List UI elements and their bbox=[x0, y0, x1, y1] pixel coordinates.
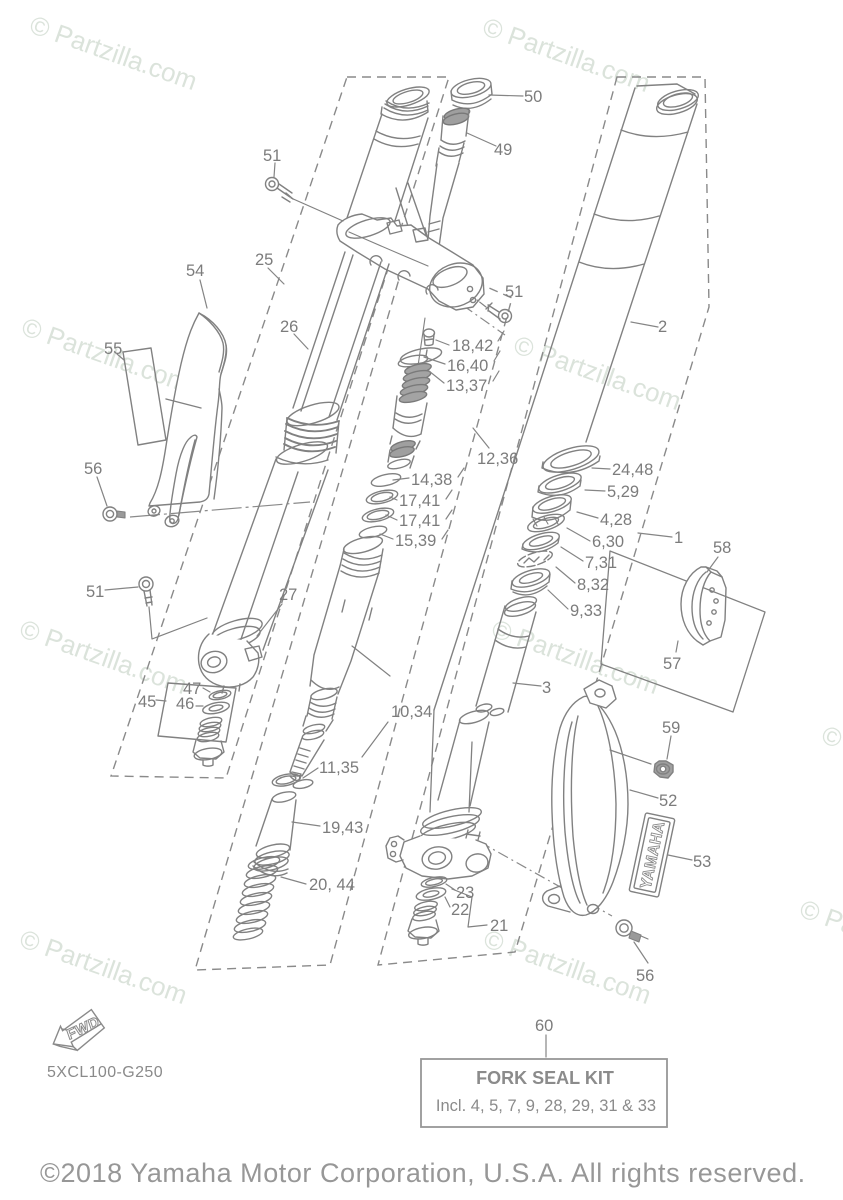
svg-text:12,36: 12,36 bbox=[477, 450, 518, 468]
svg-text:20, 44: 20, 44 bbox=[309, 876, 355, 894]
svg-text:2: 2 bbox=[658, 318, 667, 336]
svg-text:19,43: 19,43 bbox=[322, 819, 363, 837]
svg-text:5,29: 5,29 bbox=[607, 483, 639, 501]
svg-text:8,32: 8,32 bbox=[577, 576, 609, 594]
svg-text:21: 21 bbox=[490, 917, 508, 935]
svg-text:24,48: 24,48 bbox=[612, 461, 653, 479]
svg-text:4,28: 4,28 bbox=[600, 511, 632, 529]
svg-text:49: 49 bbox=[494, 141, 512, 159]
svg-text:13,37: 13,37 bbox=[446, 377, 487, 395]
svg-text:55: 55 bbox=[104, 340, 122, 358]
svg-text:46: 46 bbox=[176, 695, 194, 713]
svg-text:51: 51 bbox=[86, 583, 104, 601]
svg-text:45: 45 bbox=[138, 693, 156, 711]
svg-text:60: 60 bbox=[535, 1017, 553, 1035]
svg-text:23: 23 bbox=[456, 884, 474, 902]
svg-text:7,31: 7,31 bbox=[585, 554, 617, 572]
svg-text:1: 1 bbox=[674, 529, 683, 547]
svg-text:5XCL100-G250: 5XCL100-G250 bbox=[47, 1064, 163, 1081]
svg-text:9,33: 9,33 bbox=[570, 602, 602, 620]
svg-text:26: 26 bbox=[280, 318, 298, 336]
svg-text:54: 54 bbox=[186, 262, 204, 280]
svg-text:58: 58 bbox=[713, 539, 731, 557]
svg-text:6,30: 6,30 bbox=[592, 533, 624, 551]
svg-text:27: 27 bbox=[279, 586, 297, 604]
svg-text:22: 22 bbox=[451, 901, 469, 919]
svg-text:©2018 Yamaha Motor Corporation: ©2018 Yamaha Motor Corporation, U.S.A. A… bbox=[40, 1158, 806, 1188]
svg-text:56: 56 bbox=[636, 967, 654, 985]
svg-text:Incl. 4, 5, 7, 9, 28, 29, 31 &: Incl. 4, 5, 7, 9, 28, 29, 31 & 33 bbox=[436, 1097, 656, 1115]
svg-text:16,40: 16,40 bbox=[447, 357, 488, 375]
svg-text:52: 52 bbox=[659, 792, 677, 810]
svg-text:10,34: 10,34 bbox=[391, 703, 432, 721]
svg-text:14,38: 14,38 bbox=[411, 471, 452, 489]
svg-text:3: 3 bbox=[542, 679, 551, 697]
svg-text:15,39: 15,39 bbox=[395, 532, 436, 550]
svg-text:17,41: 17,41 bbox=[399, 492, 440, 510]
svg-text:57: 57 bbox=[663, 655, 681, 673]
svg-text:50: 50 bbox=[524, 88, 542, 106]
svg-text:59: 59 bbox=[662, 719, 680, 737]
svg-text:17,41: 17,41 bbox=[399, 512, 440, 530]
svg-text:51: 51 bbox=[263, 147, 281, 165]
svg-text:18,42: 18,42 bbox=[452, 337, 493, 355]
svg-text:53: 53 bbox=[693, 853, 711, 871]
svg-text:FORK SEAL KIT: FORK SEAL KIT bbox=[476, 1068, 614, 1088]
svg-text:51: 51 bbox=[505, 283, 523, 301]
svg-text:25: 25 bbox=[255, 251, 273, 269]
svg-text:56: 56 bbox=[84, 460, 102, 478]
svg-text:11,35: 11,35 bbox=[319, 759, 359, 777]
